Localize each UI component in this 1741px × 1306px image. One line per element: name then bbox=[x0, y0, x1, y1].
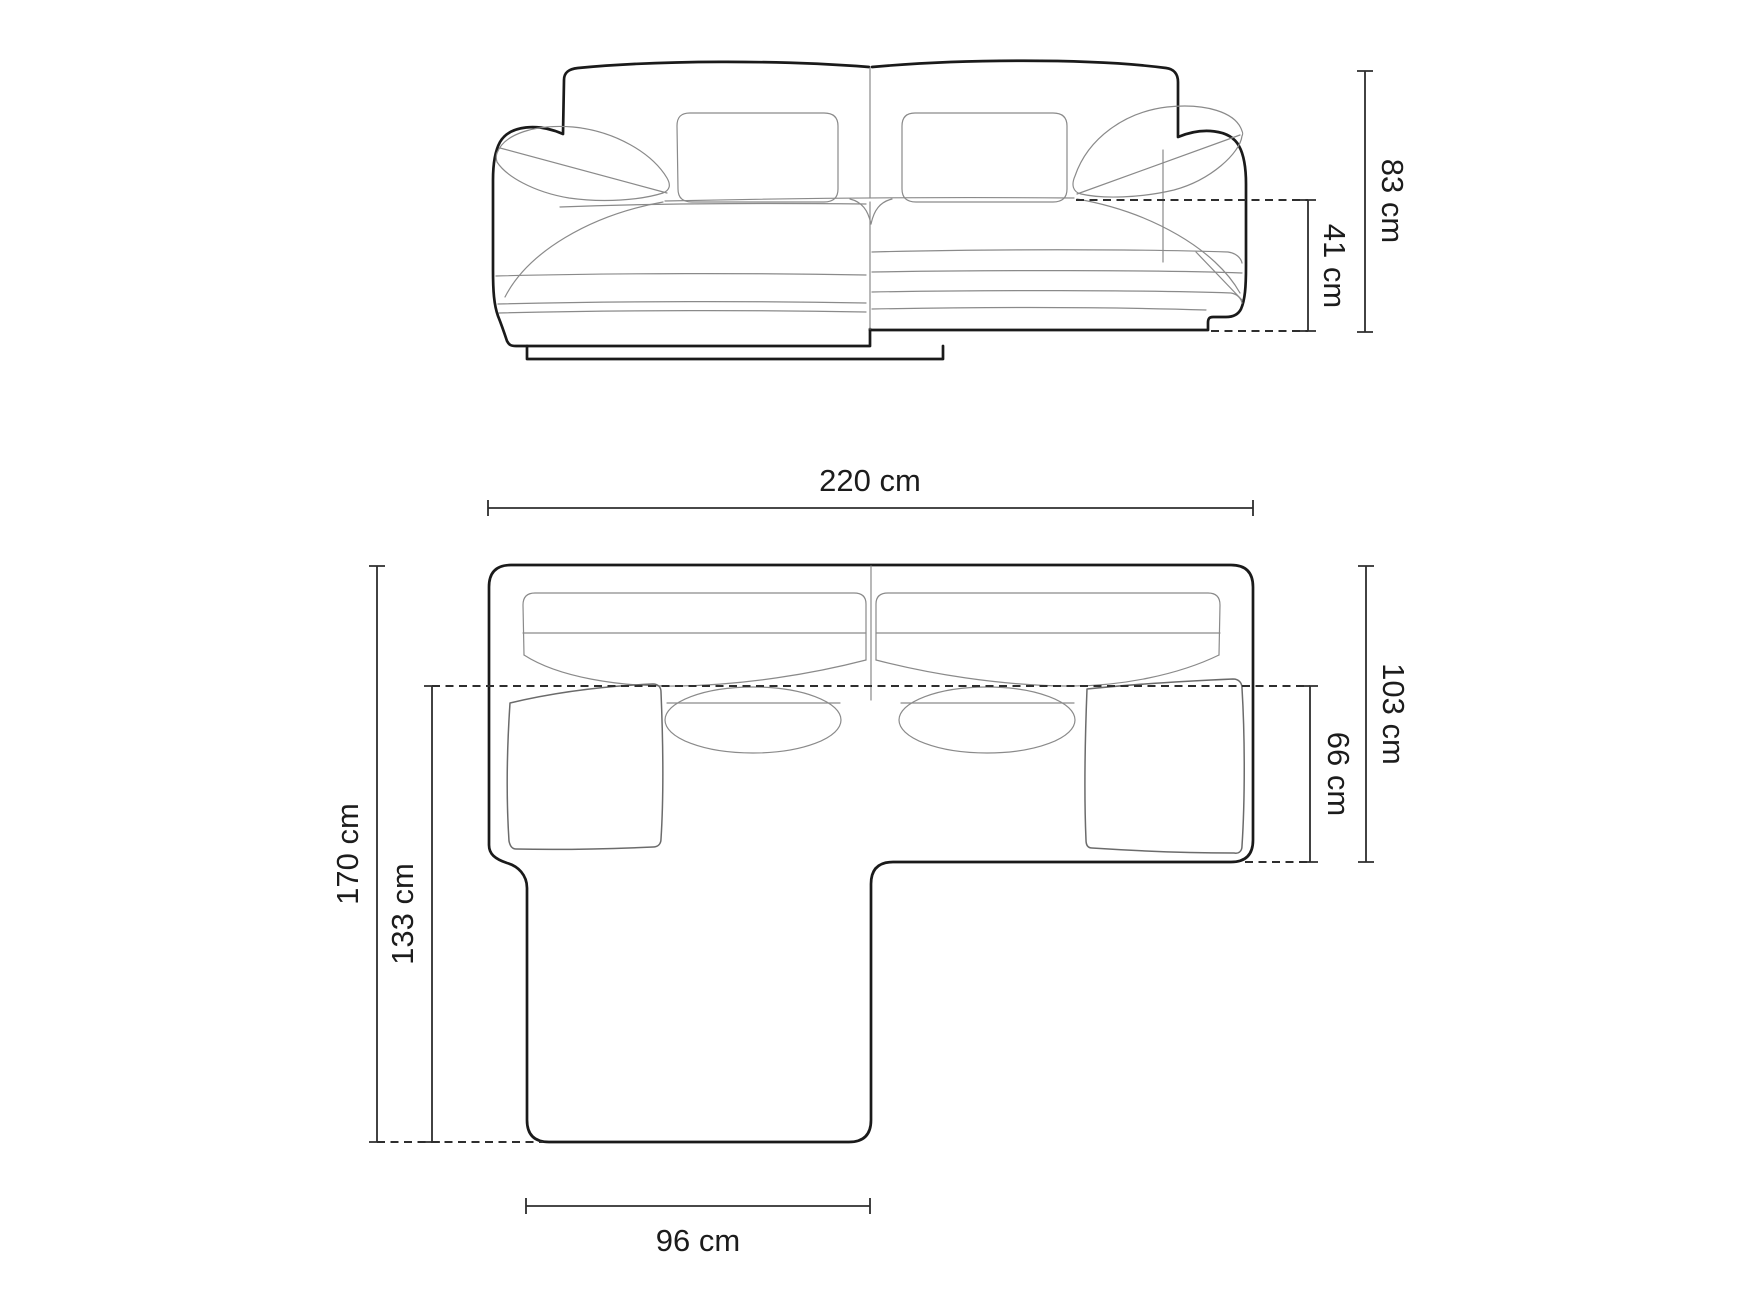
center-fold-left bbox=[850, 199, 871, 224]
right-seat-seam-2 bbox=[872, 271, 1242, 273]
plan-seat-cushion-right bbox=[899, 687, 1075, 753]
dim-line-total-depth bbox=[369, 566, 385, 1142]
sofa-dimension-diagram: 83 cm 41 cm bbox=[0, 0, 1741, 1306]
dimension-diagram-page: 83 cm 41 cm bbox=[0, 0, 1741, 1306]
sofa-front-right-outline bbox=[870, 61, 1246, 330]
chaise-seam-2 bbox=[498, 302, 866, 304]
plan-armrest-cushion-left bbox=[507, 684, 663, 849]
dim-line-body-depth bbox=[1358, 566, 1374, 862]
dimension-chaise-length: 133 cm bbox=[385, 686, 440, 1142]
armrest-pillow-left bbox=[496, 126, 669, 200]
right-seat-seam-4 bbox=[872, 308, 1206, 310]
right-seat-seam-1 bbox=[872, 250, 1242, 263]
armrest-pillow-right bbox=[1073, 106, 1243, 197]
dim-label-total-width: 220 cm bbox=[819, 463, 921, 498]
dimension-seat-height: 41 cm bbox=[1076, 200, 1352, 331]
dim-label-seat-height: 41 cm bbox=[1317, 224, 1352, 308]
dim-label-chaise-width: 96 cm bbox=[656, 1223, 740, 1258]
dimension-total-depth: 170 cm bbox=[330, 566, 385, 1142]
plan-backrest-right bbox=[876, 593, 1220, 660]
right-seat-seam-3 bbox=[872, 291, 1242, 303]
dim-line-chaise-width bbox=[526, 1198, 870, 1214]
plan-backrest-right-bottom bbox=[876, 655, 1219, 686]
chaise-seam-3 bbox=[499, 311, 866, 313]
plan-backrest-left bbox=[523, 593, 866, 660]
center-fold-right bbox=[871, 199, 892, 224]
chaise-seam-1 bbox=[496, 274, 866, 276]
back-cushion-left-front bbox=[677, 113, 838, 202]
dimension-total-width: 220 cm bbox=[488, 463, 1253, 516]
dimension-total-height: 83 cm bbox=[1357, 71, 1410, 332]
armrest-pillow-left-seam bbox=[500, 148, 667, 193]
dimension-body-depth: 103 cm bbox=[1358, 566, 1411, 862]
dimension-seat-depth: 66 cm bbox=[1302, 686, 1356, 862]
dim-line-total-width bbox=[488, 500, 1253, 516]
arm-sweep-left bbox=[505, 202, 663, 297]
sofa-front-linework bbox=[493, 61, 1246, 359]
dim-line-total-height bbox=[1357, 71, 1373, 332]
plan-armrest-cushion-right bbox=[1085, 679, 1244, 853]
dim-label-total-depth: 170 cm bbox=[330, 803, 365, 905]
plan-backrest-left-bottom bbox=[524, 655, 866, 686]
dim-label-body-depth: 103 cm bbox=[1376, 663, 1411, 765]
seat-top-line bbox=[665, 198, 1074, 201]
dim-label-chaise-length: 133 cm bbox=[385, 863, 420, 965]
arm-sweep-right bbox=[1077, 199, 1240, 293]
dim-line-seat-height bbox=[1300, 200, 1316, 331]
dim-label-seat-depth: 66 cm bbox=[1321, 732, 1356, 816]
armrest-pillow-right-seam bbox=[1077, 135, 1240, 194]
chaise-top-edge bbox=[560, 203, 866, 207]
sofa-plan-linework bbox=[489, 565, 1253, 1142]
sofa-front-plinth bbox=[527, 346, 943, 359]
dim-line-chaise-length bbox=[424, 686, 440, 1142]
top-plan-view: 220 cm 170 cm 133 cm 103 cm bbox=[330, 463, 1411, 1258]
dim-label-total-height: 83 cm bbox=[1375, 159, 1410, 243]
front-elevation-view: 83 cm 41 cm bbox=[493, 61, 1410, 359]
plan-seat-cushion-left bbox=[665, 687, 841, 753]
dim-line-seat-depth bbox=[1302, 686, 1318, 862]
back-cushion-right-front bbox=[902, 113, 1067, 202]
dimension-chaise-width: 96 cm bbox=[526, 1198, 870, 1258]
